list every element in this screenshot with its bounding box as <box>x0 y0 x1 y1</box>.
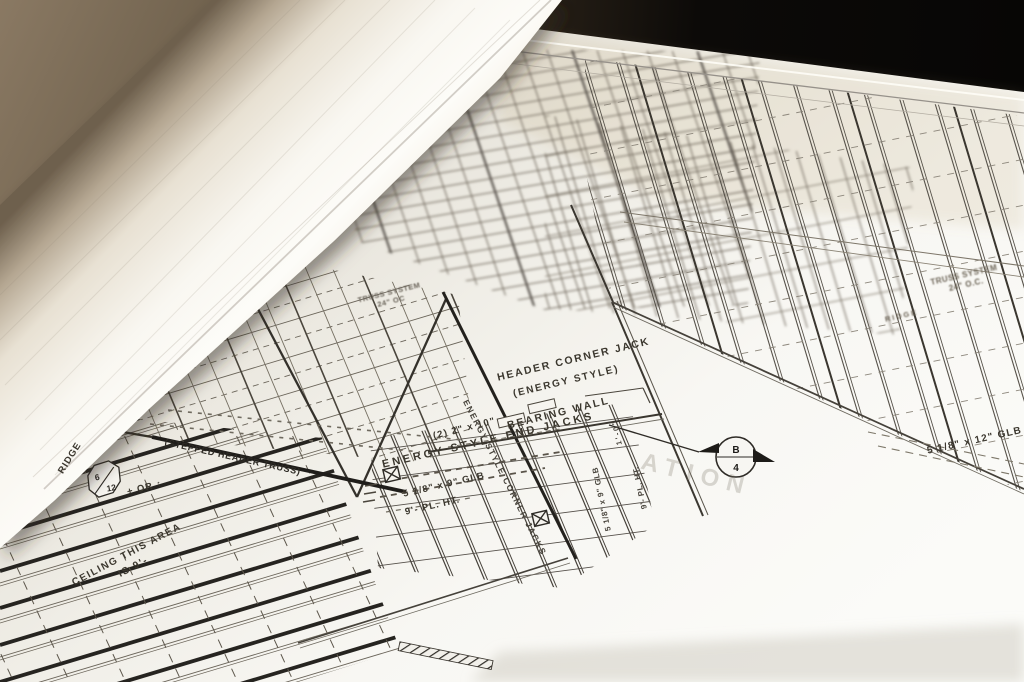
blueprint-drawing-svg: 6 12 B 4 <box>0 0 1024 682</box>
section-letter: B <box>732 445 739 456</box>
pitch-denominator: 12 <box>106 482 117 494</box>
blueprint-photo: 6 12 B 4 <box>0 0 1024 682</box>
